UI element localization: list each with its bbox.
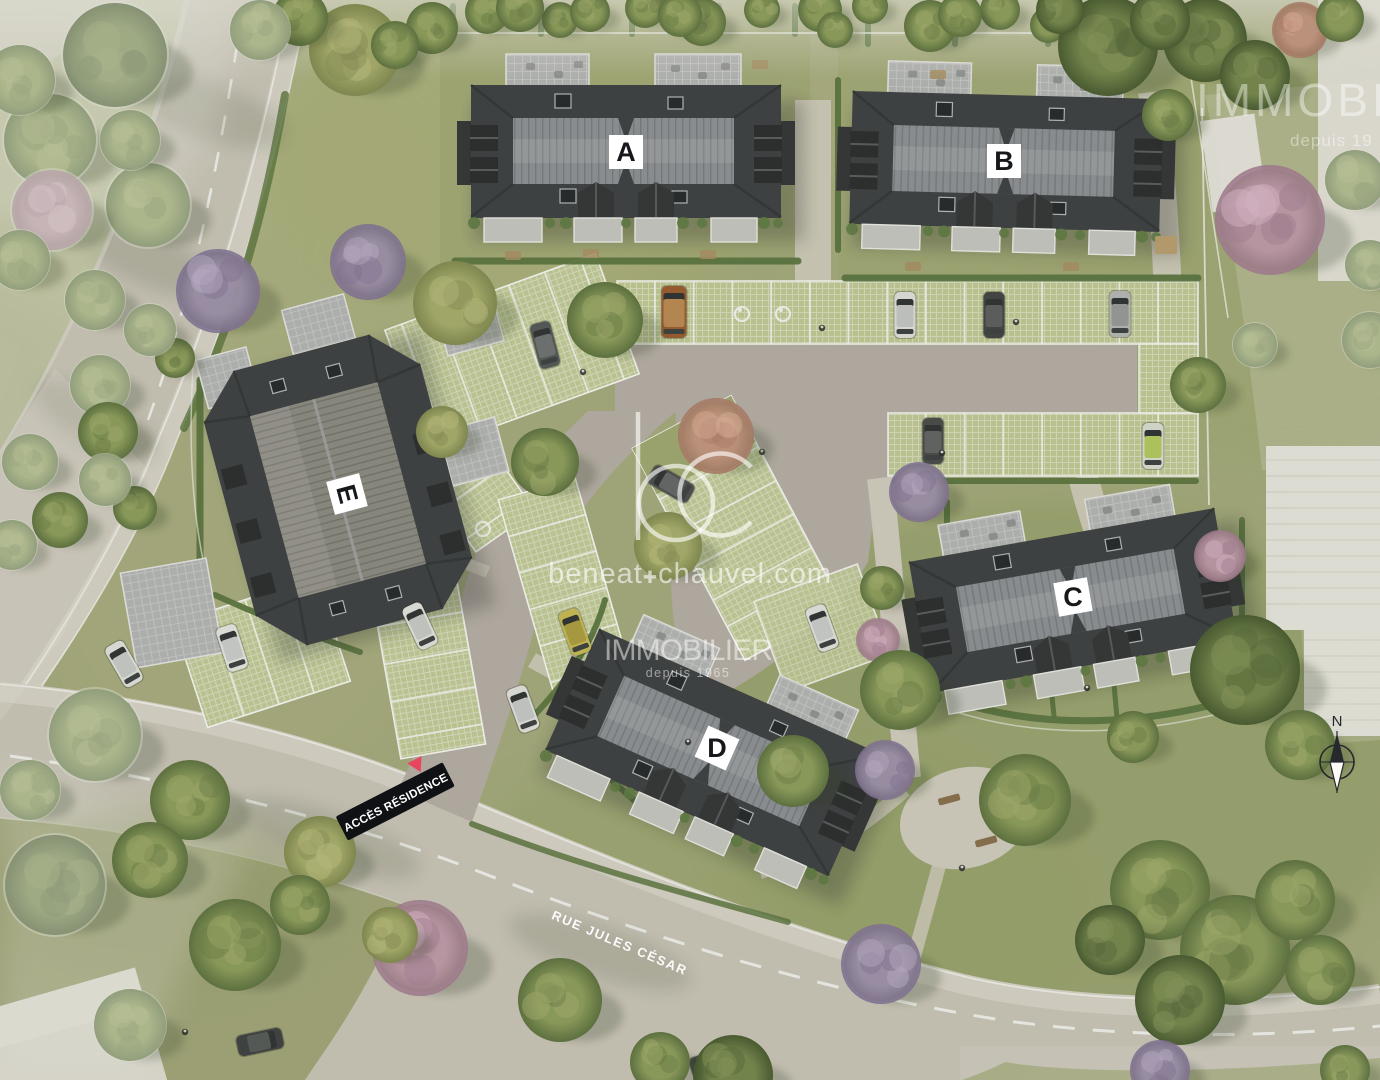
svg-text:D: D bbox=[707, 733, 727, 763]
svg-text:N: N bbox=[1332, 713, 1343, 730]
svg-text:depuis 19: depuis 19 bbox=[1290, 131, 1373, 150]
svg-text:depuis 1965: depuis 1965 bbox=[646, 666, 731, 680]
svg-text:A: A bbox=[616, 137, 636, 167]
svg-text:IMMOBIL: IMMOBIL bbox=[1196, 74, 1380, 126]
svg-text:B: B bbox=[994, 146, 1014, 176]
svg-text:C: C bbox=[1063, 582, 1083, 612]
svg-text:beneat✚chauvel.com: beneat✚chauvel.com bbox=[548, 558, 832, 590]
svg-text:IMMOBILIER: IMMOBILIER bbox=[604, 634, 776, 667]
